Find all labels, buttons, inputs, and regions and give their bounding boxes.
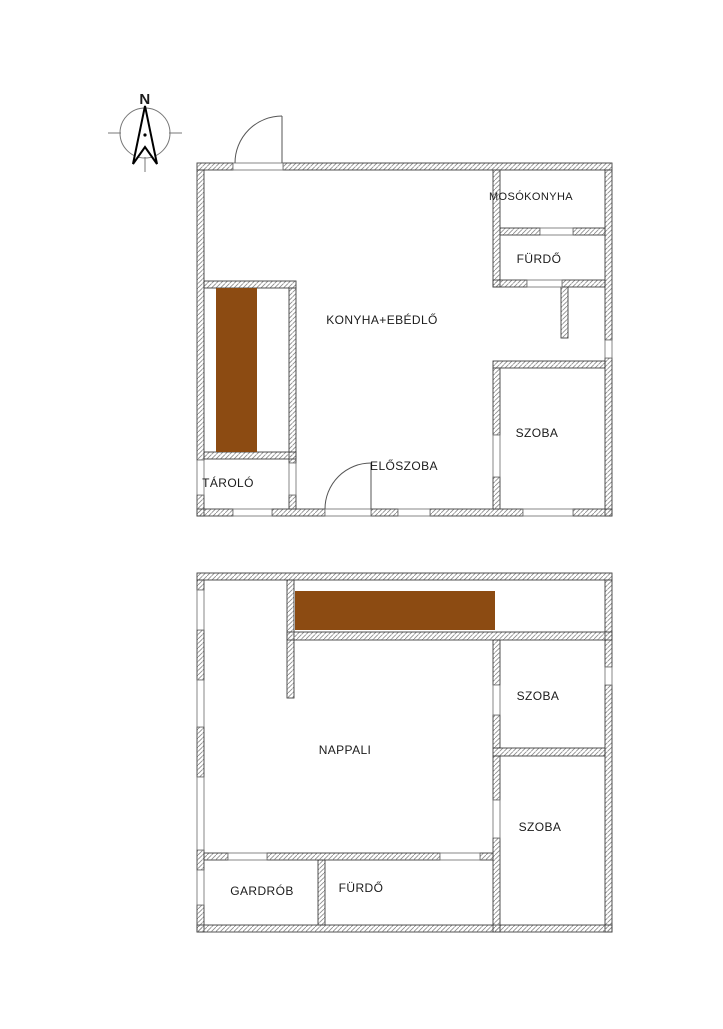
wall-segment: [562, 280, 605, 287]
window-marker: [605, 667, 612, 685]
room-label-mosokonyha: MOSÓKONYHA: [489, 190, 573, 203]
door-opening: [233, 163, 283, 170]
door-opening: [493, 800, 500, 838]
room-label-eloszoba: ELŐSZOBA: [370, 458, 438, 473]
wall-segment: [289, 288, 296, 463]
wall-segment: [493, 361, 605, 368]
wall-segment: [272, 509, 325, 516]
wall-segment: [493, 280, 527, 287]
door-opening: [540, 228, 573, 235]
window-marker: [197, 870, 204, 905]
compass-center-dot: [143, 133, 146, 136]
wall-segment: [493, 715, 500, 748]
room-label-furdo-floor1: FÜRDŐ: [517, 251, 562, 266]
staircase-floor2: [295, 591, 495, 630]
wall-segment: [283, 163, 612, 170]
wall-segment: [493, 368, 500, 435]
wall-segment: [493, 748, 605, 756]
wall-segment: [605, 358, 612, 516]
door-opening: [325, 509, 371, 516]
wall-segment: [605, 685, 612, 932]
wall-segment: [197, 170, 204, 460]
door-opening: [440, 853, 480, 860]
window-marker: [605, 340, 612, 358]
wall-segment: [493, 838, 500, 932]
wall-segment: [493, 640, 500, 685]
room-label-nappali: NAPPALI: [319, 743, 372, 757]
room-label-szoba-upper: SZOBA: [517, 689, 560, 703]
wall-segment: [197, 850, 204, 870]
wall-segment: [573, 228, 605, 235]
wall-segment: [561, 287, 568, 338]
floor-plan-canvas: N: [0, 0, 723, 1024]
window-marker: [197, 777, 204, 850]
room-label-szoba-floor1: SZOBA: [516, 426, 559, 440]
wall-segment: [204, 281, 296, 288]
wall-segment: [371, 509, 398, 516]
floor1-plan: KONYHA+EBÉDLŐ MOSÓKONYHA FÜRDŐ SZOBA TÁR…: [197, 116, 612, 516]
door-opening: [493, 685, 500, 715]
wall-segment: [430, 509, 523, 516]
wall-segment: [493, 170, 500, 287]
wall-segment: [197, 163, 233, 170]
window-marker: [398, 509, 430, 516]
door-swing-arc: [325, 463, 371, 509]
wall-segment: [287, 632, 612, 640]
wall-segment: [267, 853, 440, 860]
door-opening: [527, 280, 562, 287]
wall-segment: [289, 495, 296, 509]
wall-segment: [493, 477, 500, 509]
wall-segment: [500, 228, 540, 235]
door-opening: [289, 463, 296, 495]
floor2-plan: NAPPALI SZOBA SZOBA GARDRÓB FÜRDŐ: [197, 573, 612, 932]
room-label-szoba-lower: SZOBA: [519, 820, 562, 834]
wall-segment: [605, 170, 612, 340]
window-marker: [197, 590, 204, 630]
room-label-tarolo: TÁROLÓ: [202, 475, 254, 490]
wall-segment: [197, 573, 612, 580]
window-marker: [197, 680, 204, 727]
window-marker: [233, 509, 272, 516]
wall-segment: [204, 853, 228, 860]
wall-segment: [197, 925, 612, 932]
room-label-konyha-ebedlo: KONYHA+EBÉDLŐ: [326, 312, 438, 327]
compass-rose: N: [108, 91, 182, 172]
floor-plan-page: N: [0, 0, 723, 1024]
wall-segment: [480, 853, 493, 860]
room-label-gardrob: GARDRÓB: [230, 883, 293, 898]
wall-segment: [605, 580, 612, 667]
window-marker: [523, 509, 573, 516]
compass-north-label: N: [139, 91, 150, 108]
wall-segment: [493, 756, 500, 800]
door-opening: [228, 853, 267, 860]
wall-segment: [204, 452, 296, 459]
wall-segment: [197, 727, 204, 777]
door-opening: [493, 435, 500, 477]
wall-segment: [197, 509, 233, 516]
staircase-floor1: [216, 288, 257, 452]
room-label-furdo-floor2: FÜRDŐ: [339, 880, 384, 895]
wall-segment: [318, 860, 325, 925]
wall-segment: [197, 630, 204, 680]
wall-segment: [573, 509, 612, 516]
wall-segment: [197, 580, 204, 590]
door-swing-arc: [235, 116, 282, 163]
